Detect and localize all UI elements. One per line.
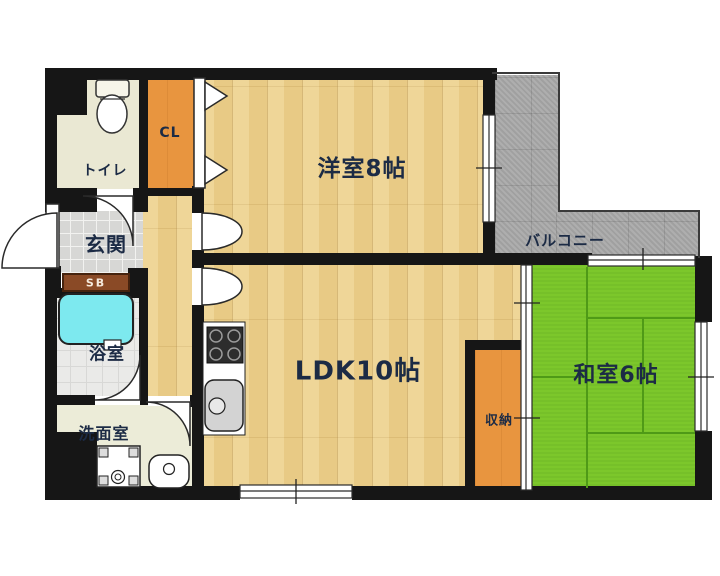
balcony-label: バルコニー xyxy=(525,230,605,251)
washing-machine-icon xyxy=(97,446,140,487)
japanese-room-label: 和室6帖 xyxy=(573,357,658,389)
ldk-door-swing xyxy=(202,268,242,305)
bathroom-label: 浴室 xyxy=(89,340,125,365)
dimension-ticks xyxy=(296,168,714,504)
closet-label: CL xyxy=(159,125,180,141)
closet-folding-door xyxy=(194,78,205,188)
stove-icon xyxy=(207,327,243,363)
kitchen-sink-icon xyxy=(205,380,243,431)
front-door-swing xyxy=(2,213,57,268)
ldk-label: LDK10帖 xyxy=(295,351,421,388)
closet-door-arrow-icon xyxy=(205,82,227,110)
washroom-label: 洗面室 xyxy=(78,420,129,444)
washbasin-icon xyxy=(149,455,189,488)
storage-label: 収納 xyxy=(485,410,513,429)
western-room-door-swing xyxy=(202,213,242,250)
floorplan: SB xyxy=(0,0,720,576)
plan-symbols-layer xyxy=(0,0,720,576)
windows xyxy=(240,115,707,498)
toilet-label: トイレ xyxy=(83,160,128,180)
entrance-label: 玄関 xyxy=(85,229,127,258)
toilet-icon xyxy=(96,80,129,133)
washroom-door-swing xyxy=(146,402,190,446)
western-room-label: 洋室8帖 xyxy=(317,149,406,183)
closet-door-arrow-icon xyxy=(205,156,227,184)
